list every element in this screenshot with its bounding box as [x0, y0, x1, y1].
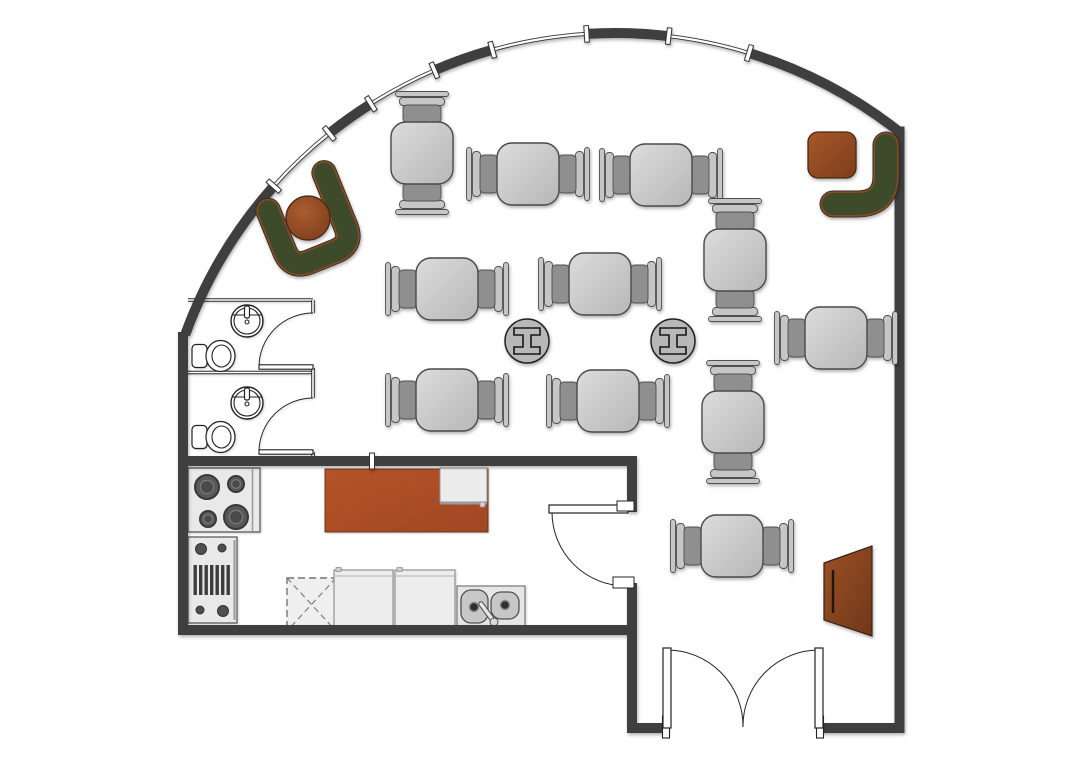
chair-seat — [716, 291, 754, 309]
chair-backrest-outer — [547, 375, 552, 428]
chair-backrest-outer — [789, 520, 794, 573]
chair-w[interactable] — [600, 149, 631, 202]
round-coffee-table[interactable] — [286, 196, 330, 240]
chair-backrest-outer — [893, 312, 898, 365]
chair-backrest — [781, 316, 789, 361]
table-top[interactable] — [805, 307, 867, 369]
chair-backrest — [392, 378, 400, 423]
chair-seat — [552, 265, 570, 303]
sink-faucet — [245, 306, 250, 318]
planned-appliance-space[interactable] — [287, 578, 336, 631]
grill-knob — [218, 606, 229, 617]
floor-plan-canvas — [0, 0, 1089, 782]
chair-e[interactable] — [478, 263, 509, 316]
entrance-door-leaf[interactable] — [815, 648, 823, 728]
chair-backrest-outer — [504, 263, 509, 316]
chair-seat — [631, 265, 649, 303]
chair-backrest-outer — [709, 317, 762, 322]
chair-backrest-outer — [396, 92, 449, 97]
cabinet-top — [334, 570, 393, 630]
chair-w[interactable] — [386, 263, 417, 316]
chair-e[interactable] — [478, 374, 509, 427]
chair-backrest-outer — [775, 312, 780, 365]
chair-backrest — [884, 316, 892, 361]
bathroom-sink[interactable] — [231, 305, 263, 337]
bathroom-door-leaf[interactable] — [259, 450, 313, 454]
chair-backrest — [392, 267, 400, 312]
table-top[interactable] — [701, 515, 763, 577]
chair-backrest-outer — [467, 148, 472, 201]
cabinet-top — [395, 570, 455, 630]
chair-backrest-outer — [600, 149, 605, 202]
chair-seat — [403, 184, 441, 202]
stove-burner-center — [200, 480, 213, 493]
island-board-unit[interactable] — [440, 468, 487, 507]
chair-seat — [399, 270, 417, 308]
chair-seat — [763, 527, 781, 565]
chair-backrest — [780, 524, 788, 569]
column-circle — [651, 319, 695, 363]
table-top[interactable] — [704, 229, 766, 291]
bathroom-door-leaf[interactable] — [259, 365, 313, 369]
chair-seat — [714, 453, 752, 471]
island-board — [440, 468, 487, 502]
table-top[interactable] — [416, 369, 478, 431]
kitchen-double-sink[interactable] — [457, 586, 525, 628]
sink-basin-drain — [470, 603, 479, 612]
sink-faucet — [245, 388, 250, 400]
table-top[interactable] — [497, 143, 559, 205]
chair-backrest — [576, 152, 584, 197]
chair-backrest — [473, 152, 481, 197]
grill-slat — [221, 565, 224, 595]
chair-backrest — [711, 367, 756, 375]
grill-slat — [210, 565, 213, 595]
table-top[interactable] — [577, 370, 639, 432]
table-top[interactable] — [630, 144, 692, 206]
grill-knob — [196, 606, 204, 614]
chair-backrest-outer — [386, 263, 391, 316]
chair-w[interactable] — [467, 148, 498, 201]
chair-seat — [480, 155, 498, 193]
curved-wall-segment[interactable] — [587, 33, 669, 36]
chair-seat — [714, 374, 752, 392]
column-circle — [505, 319, 549, 363]
table-top[interactable] — [391, 122, 453, 184]
chair-backrest — [713, 308, 758, 316]
grill-slat — [194, 565, 197, 595]
stove-burner-center — [204, 515, 213, 524]
island-board-knob — [480, 502, 485, 507]
chair-n[interactable] — [707, 361, 760, 392]
structural-column[interactable] — [651, 319, 695, 363]
chair-seat — [560, 382, 578, 420]
chair-backrest — [400, 201, 445, 209]
grill-slat — [227, 565, 230, 595]
table-top[interactable] — [416, 258, 478, 320]
stove-burner-center — [232, 480, 241, 489]
kitchen-grill-unit[interactable] — [188, 537, 237, 623]
chair-s[interactable] — [709, 291, 762, 322]
chair-w[interactable] — [547, 375, 578, 428]
floor-plan-stage — [0, 0, 1089, 782]
door-jamb — [617, 501, 634, 511]
chair-backrest — [495, 378, 503, 423]
chair-s[interactable] — [396, 184, 449, 215]
chair-backrest-outer — [707, 479, 760, 484]
wall-joint-tick — [370, 453, 375, 469]
chair-e[interactable] — [867, 312, 898, 365]
door-jamb — [613, 577, 634, 588]
base-cabinet[interactable] — [395, 568, 455, 631]
square-coffee-table[interactable] — [808, 132, 856, 178]
bathroom-sink[interactable] — [231, 387, 263, 419]
cabinet-handle — [336, 568, 341, 572]
chair-e[interactable] — [639, 375, 670, 428]
chair-backrest-outer — [671, 520, 676, 573]
chair-backrest — [677, 524, 685, 569]
chair-seat — [403, 105, 441, 123]
chair-backrest — [709, 153, 717, 198]
chair-backrest-outer — [718, 149, 723, 202]
chair-backrest — [495, 267, 503, 312]
stove-cooktop[interactable] — [188, 468, 260, 532]
grill-slat — [205, 565, 208, 595]
toilet[interactable] — [192, 341, 235, 372]
chair-e[interactable] — [692, 149, 723, 202]
chair-seat — [684, 527, 702, 565]
chair-n[interactable] — [709, 199, 762, 230]
toilet-tank — [192, 426, 207, 449]
table-top[interactable] — [569, 253, 631, 315]
chair-backrest-outer — [657, 258, 662, 311]
floor-background — [0, 0, 1089, 782]
chair-backrest-outer — [709, 199, 762, 204]
chair-backrest — [545, 262, 553, 307]
chair-w[interactable] — [775, 312, 806, 365]
chair-seat — [716, 212, 754, 230]
kitchen-door-leaf[interactable] — [549, 505, 628, 513]
chair-backrest — [648, 262, 656, 307]
chair-seat — [613, 156, 631, 194]
chair-backrest-outer — [386, 374, 391, 427]
chair-seat — [639, 382, 657, 420]
chair-backrest — [606, 153, 614, 198]
sink-drain — [245, 402, 249, 406]
grill-knob — [196, 544, 207, 555]
toilet[interactable] — [192, 422, 235, 453]
chair-seat — [399, 381, 417, 419]
grill-knob — [218, 544, 226, 552]
grill-slat — [199, 565, 202, 595]
chair-backrest-outer — [665, 375, 670, 428]
chair-backrest-outer — [585, 148, 590, 201]
chair-n[interactable] — [396, 92, 449, 123]
grill-slat — [216, 565, 219, 595]
chair-backrest-outer — [396, 210, 449, 215]
mullion-tick — [584, 26, 590, 43]
cabinet-handle — [397, 568, 402, 572]
chair-seat — [478, 381, 496, 419]
chair-w[interactable] — [671, 520, 702, 573]
chair-backrest-outer — [707, 361, 760, 366]
chair-seat — [788, 319, 806, 357]
chair-backrest — [713, 205, 758, 213]
chair-backrest-outer — [539, 258, 544, 311]
chair-backrest — [711, 470, 756, 478]
toilet-bowl-inner — [212, 345, 231, 367]
chair-seat — [478, 270, 496, 308]
chair-seat — [559, 155, 577, 193]
chair-w[interactable] — [539, 258, 570, 311]
base-cabinet[interactable] — [334, 568, 393, 631]
chair-backrest — [400, 98, 445, 106]
sink-basin-drain — [501, 601, 510, 610]
chair-backrest — [656, 379, 664, 424]
sink-drain — [245, 320, 249, 324]
structural-column[interactable] — [505, 319, 549, 363]
chair-e[interactable] — [631, 258, 662, 311]
chair-s[interactable] — [707, 453, 760, 484]
chair-seat — [692, 156, 710, 194]
toilet-tank — [192, 345, 207, 368]
entrance-door-leaf[interactable] — [663, 648, 671, 728]
chair-seat — [867, 319, 885, 357]
chair-e[interactable] — [559, 148, 590, 201]
chair-w[interactable] — [386, 374, 417, 427]
table-top[interactable] — [702, 391, 764, 453]
chair-backrest — [553, 379, 561, 424]
chair-e[interactable] — [763, 520, 794, 573]
chair-backrest-outer — [504, 374, 509, 427]
toilet-bowl-inner — [212, 426, 231, 448]
window-mullion — [584, 26, 590, 43]
stove-burner-center — [229, 510, 242, 523]
kitchen-faucet-knob — [490, 618, 498, 626]
